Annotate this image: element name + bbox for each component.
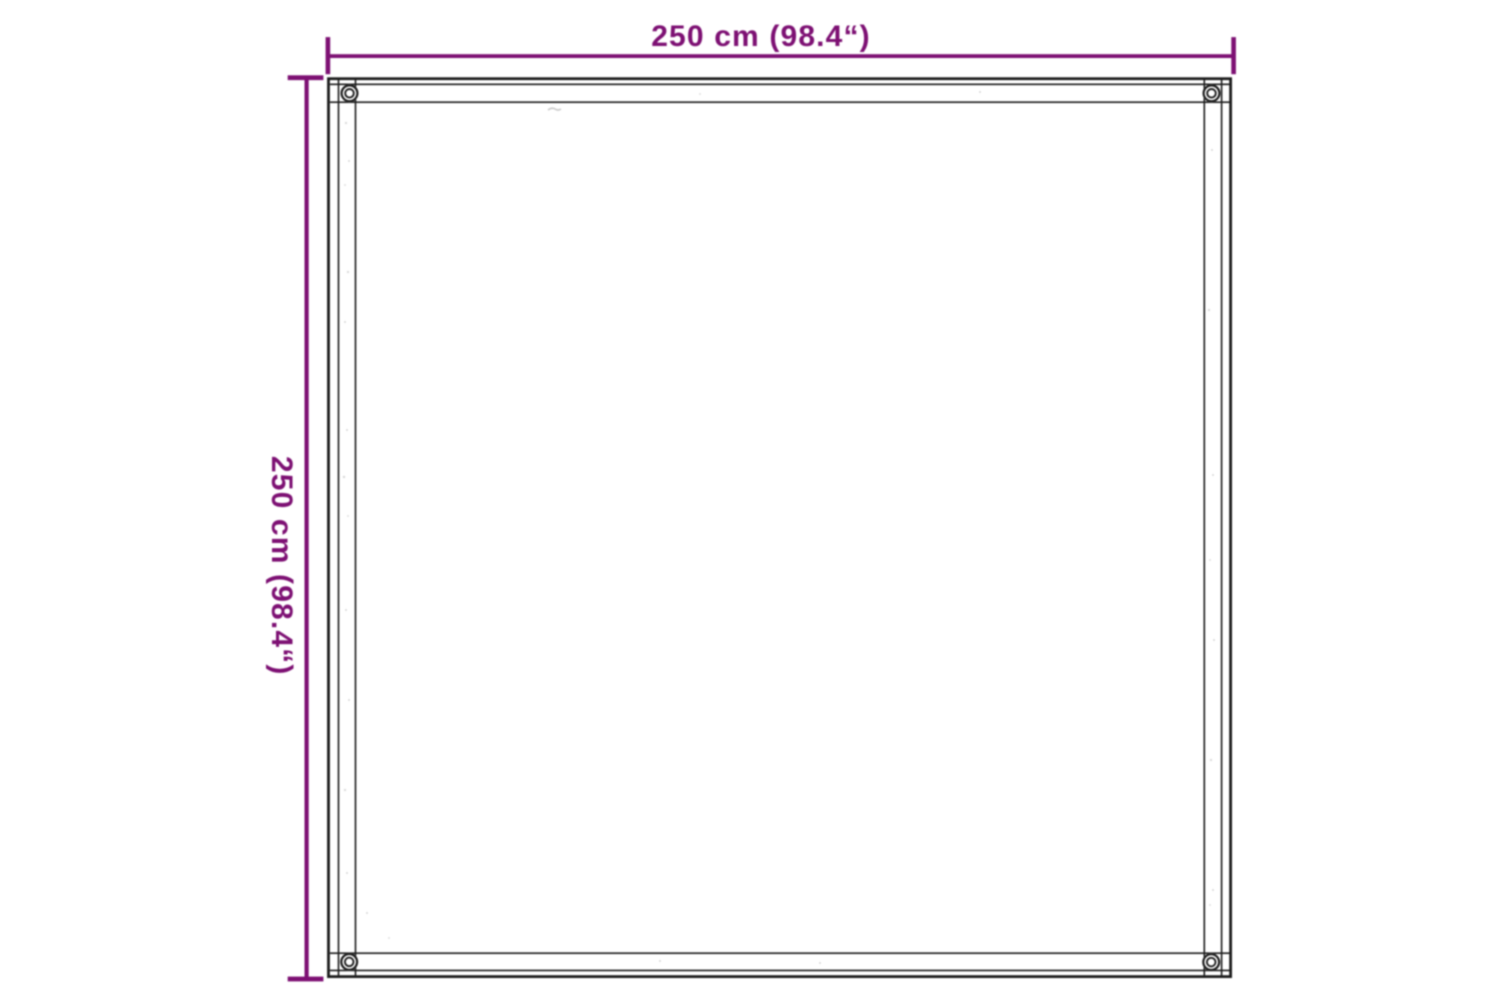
svg-text:250 cm (98.4“): 250 cm (98.4“)	[651, 20, 871, 53]
svg-text:250 cm (98.4“): 250 cm (98.4“)	[265, 456, 298, 676]
